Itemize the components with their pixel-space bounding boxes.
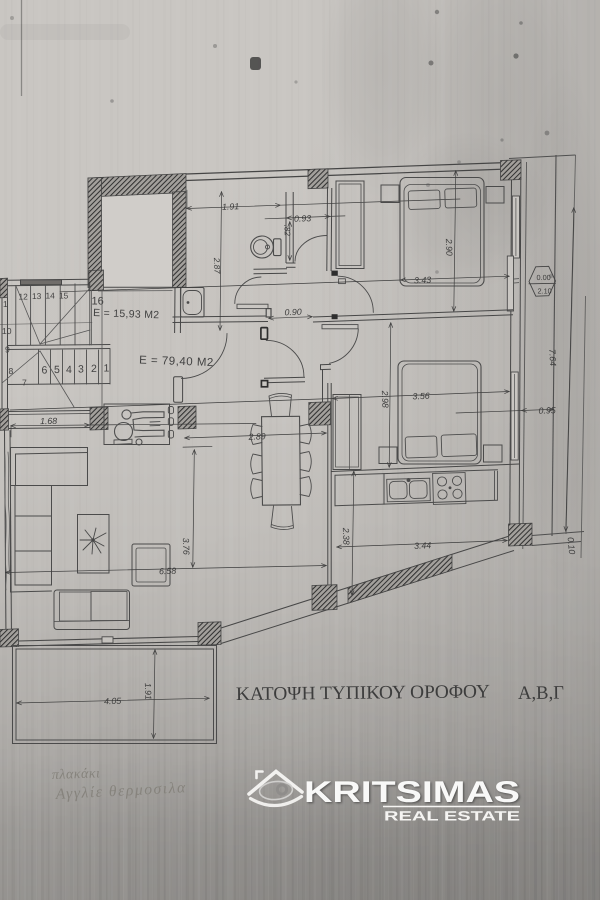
svg-text:2.10: 2.10 — [538, 287, 552, 296]
svg-text:13: 13 — [32, 291, 42, 301]
svg-text:.82: .82 — [282, 224, 292, 236]
svg-text:8: 8 — [9, 366, 14, 376]
svg-text:0.95: 0.95 — [538, 405, 556, 416]
svg-text:9: 9 — [5, 345, 10, 355]
svg-text:1.91: 1.91 — [222, 201, 240, 212]
svg-text:0.10: 0.10 — [566, 537, 577, 555]
svg-text:1: 1 — [104, 363, 110, 375]
svg-text:2.98: 2.98 — [380, 390, 391, 409]
svg-text:12: 12 — [19, 292, 29, 302]
svg-text:7: 7 — [22, 378, 27, 388]
svg-text:4.05: 4.05 — [104, 696, 121, 706]
svg-text:10: 10 — [2, 326, 12, 336]
svg-text:15: 15 — [59, 290, 69, 300]
svg-text:14: 14 — [46, 291, 56, 301]
svg-text:2.87: 2.87 — [212, 257, 222, 275]
svg-text:5: 5 — [54, 364, 60, 376]
svg-text:3.56: 3.56 — [412, 391, 430, 402]
svg-text:4: 4 — [66, 364, 72, 376]
svg-text:Α,Β,Γ: Α,Β,Γ — [518, 683, 564, 704]
svg-text:1.68: 1.68 — [40, 416, 57, 426]
svg-text:0.90: 0.90 — [284, 307, 302, 318]
svg-text:7.64: 7.64 — [547, 349, 558, 367]
svg-text:REAL ESTATE: REAL ESTATE — [384, 809, 520, 824]
svg-text:1.91: 1.91 — [143, 683, 154, 701]
svg-text:3: 3 — [78, 363, 84, 375]
svg-text:2.90: 2.90 — [444, 238, 455, 257]
svg-text:3.43: 3.43 — [414, 275, 432, 286]
svg-text:ΚΑΤΟΨΗ ΤΥΠΙΚΟΥ ΟΡΟΦΟΥ: ΚΑΤΟΨΗ ΤΥΠΙΚΟΥ ΟΡΟΦΟΥ — [236, 681, 490, 705]
svg-text:0.00: 0.00 — [537, 273, 551, 282]
svg-text:16: 16 — [92, 296, 104, 308]
svg-text:3.44: 3.44 — [414, 540, 432, 551]
svg-text:2.38: 2.38 — [341, 527, 352, 546]
svg-text:6: 6 — [42, 365, 48, 377]
svg-text:πλακάκι: πλακάκι — [52, 766, 101, 783]
svg-text:6.58: 6.58 — [159, 566, 176, 576]
svg-text:1: 1 — [3, 299, 8, 309]
svg-text:2: 2 — [91, 363, 97, 375]
svg-text:0.93: 0.93 — [294, 213, 312, 224]
svg-text:E = 15,93 M2: E = 15,93 M2 — [93, 307, 160, 321]
svg-text:2.89: 2.89 — [247, 431, 266, 442]
svg-text:3.76: 3.76 — [181, 538, 192, 556]
svg-text:KRITSIMAS: KRITSIMAS — [304, 776, 520, 809]
